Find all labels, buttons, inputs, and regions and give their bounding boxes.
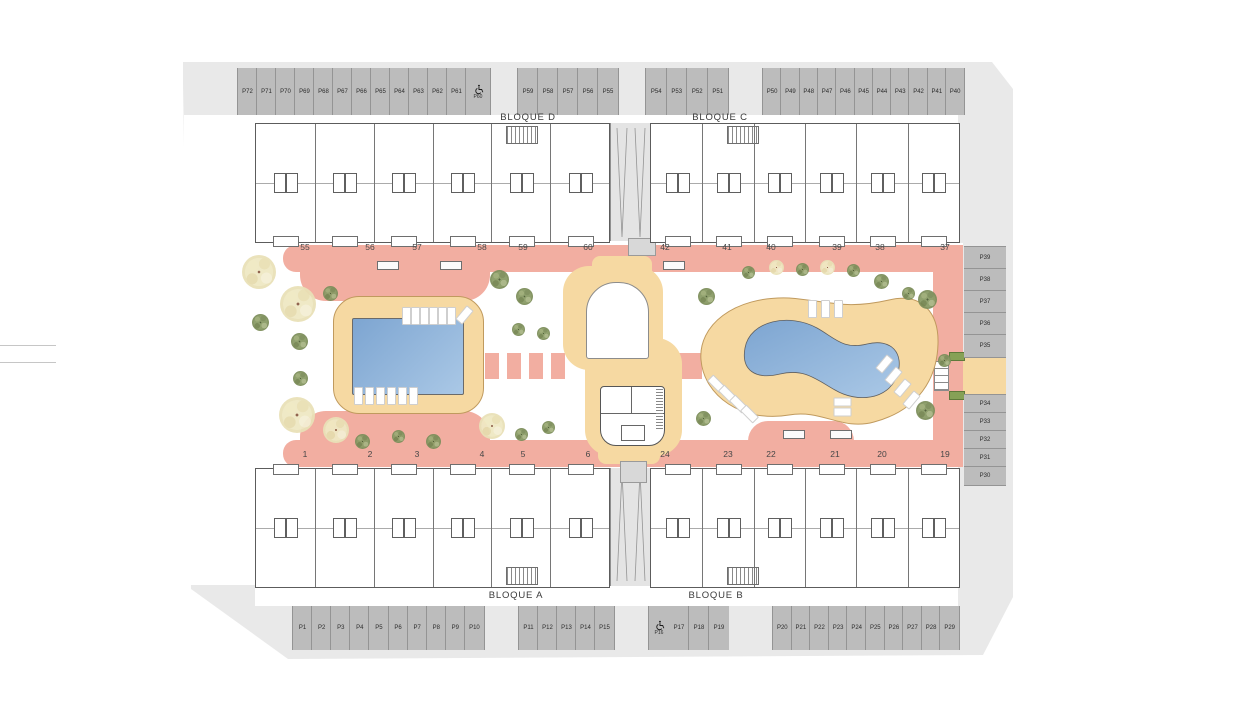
bath-core	[463, 518, 475, 538]
unit-number: 57	[412, 242, 421, 252]
parking-stall-label: P40	[950, 89, 961, 95]
unit-number: 5	[521, 449, 526, 459]
sun-lounger	[376, 387, 385, 405]
tree	[874, 274, 889, 289]
tree	[392, 430, 405, 443]
unit-number: 39	[832, 242, 841, 252]
terrace	[332, 236, 358, 247]
parking-stall-label: P8	[433, 625, 440, 631]
stair-core	[820, 518, 832, 538]
parking-stall-label: P25	[870, 625, 881, 631]
tree	[696, 411, 711, 426]
parking-stall-label: P68	[318, 89, 329, 95]
entrance-stair	[506, 567, 538, 585]
parking-stall: P4	[349, 606, 369, 650]
tree	[280, 286, 316, 322]
stair-core	[871, 173, 883, 193]
stair-core	[569, 518, 581, 538]
terrace	[509, 464, 535, 475]
apartment-wing	[650, 468, 960, 588]
pool-house	[600, 386, 665, 446]
unit-divider	[433, 124, 434, 242]
parking-stall-label: P34	[980, 401, 991, 407]
parking-stall-label: P38	[980, 277, 991, 283]
stair-core	[333, 173, 345, 193]
sun-lounger	[402, 307, 411, 325]
parking-stall-label: P16	[655, 631, 664, 636]
sun-lounger	[354, 387, 363, 405]
parking-stall: P8	[426, 606, 446, 650]
parking-stall-label: P54	[651, 89, 662, 95]
unit-divider	[374, 124, 375, 242]
bath-core	[883, 518, 895, 538]
wheelchair-icon	[473, 84, 484, 95]
parking-stall-label: P66	[356, 89, 367, 95]
parking-stall-label: P67	[337, 89, 348, 95]
parking-stall-label: P59	[523, 89, 534, 95]
parking-stall-label: P53	[671, 89, 682, 95]
stair-core	[510, 518, 522, 538]
parking-stall: P55	[597, 68, 619, 115]
unit-divider	[908, 124, 909, 242]
sun-lounger	[398, 387, 407, 405]
bath-core	[729, 518, 741, 538]
parking-stall-label: P41	[931, 89, 942, 95]
ramp-corridor-bottom	[610, 468, 652, 586]
bath-core	[832, 173, 844, 193]
bench	[830, 430, 852, 439]
stair-core	[871, 518, 883, 538]
unit-number: 3	[415, 449, 420, 459]
bath-core	[678, 518, 690, 538]
stair-core	[274, 173, 286, 193]
bath-core	[934, 173, 946, 193]
parking-stall-label: P12	[542, 625, 553, 631]
block-label-d: BLOQUE D	[500, 112, 556, 123]
stair-core	[717, 518, 729, 538]
parking-stall-label: P48	[803, 89, 814, 95]
parking-stall: P70	[275, 68, 295, 115]
parking-stall: P39	[964, 246, 1006, 269]
block-label-c: BLOQUE C	[692, 112, 748, 123]
parking-stall-label: P55	[603, 89, 614, 95]
tree	[291, 333, 308, 350]
unit-number: 23	[723, 449, 732, 459]
parking-stall-label: P64	[394, 89, 405, 95]
parking-stall-label: P15	[599, 625, 610, 631]
parking-stall: P58	[537, 68, 558, 115]
parking-stall: P18	[688, 606, 709, 650]
terrace	[819, 464, 845, 475]
parking-stall: P50	[762, 68, 781, 115]
parking-stall: P35	[964, 334, 1006, 358]
stair-core	[510, 173, 522, 193]
tree	[516, 288, 533, 305]
parking-stall-label: P20	[777, 625, 788, 631]
bath-core	[286, 173, 298, 193]
right-pool-deck	[693, 286, 945, 432]
reference-line	[0, 362, 56, 363]
unit-divider	[491, 124, 492, 242]
site-plan: P72P71P70P69P68P67P66P65P64P63P62P61P60P…	[0, 0, 1240, 720]
tree	[938, 354, 951, 367]
unit-number: 42	[660, 242, 669, 252]
unit-number: 21	[830, 449, 839, 459]
parking-stall-label: P37	[980, 299, 991, 305]
block-label-b: BLOQUE B	[689, 590, 744, 601]
bath-core	[522, 518, 534, 538]
unit-number: 4	[480, 449, 485, 459]
parking-stall: P5	[368, 606, 388, 650]
parking-stall-label: P31	[980, 455, 991, 461]
tree	[847, 264, 860, 277]
bath-core	[404, 518, 416, 538]
parking-stall: P26	[884, 606, 904, 650]
unit-number: 40	[766, 242, 775, 252]
parking-stall: P47	[817, 68, 836, 115]
parking-stall-label: P61	[451, 89, 462, 95]
parking-stall-label: P4	[356, 625, 363, 631]
parking-stall-label: P19	[714, 625, 725, 631]
unit-divider	[856, 469, 857, 587]
bath-core	[581, 518, 593, 538]
unit-number: 60	[583, 242, 592, 252]
tree	[355, 434, 370, 449]
parking-stall: P68	[313, 68, 333, 115]
parking-stall: P2	[311, 606, 331, 650]
tree	[293, 371, 308, 386]
unit-number: 58	[477, 242, 486, 252]
unit-divider	[491, 469, 492, 587]
parking-stall: P36	[964, 312, 1006, 335]
parking-stall: P11	[518, 606, 538, 650]
sun-lounger	[834, 398, 852, 407]
terrace	[665, 464, 691, 475]
terrace	[332, 464, 358, 475]
bench	[783, 430, 805, 439]
parking-stall-label: P14	[580, 625, 591, 631]
landing-pad	[620, 461, 647, 483]
stair-core	[451, 173, 463, 193]
walkway-pad	[485, 353, 499, 379]
parking-stall: P30	[964, 466, 1006, 486]
parking-stall: P54	[645, 68, 667, 115]
bath-core	[832, 518, 844, 538]
parking-stall: P1	[292, 606, 312, 650]
parking-stall: P16	[648, 606, 669, 650]
parking-stall: P62	[427, 68, 447, 115]
parking-stall: P24	[846, 606, 866, 650]
sun-lounger	[447, 307, 456, 325]
bath-core	[729, 173, 741, 193]
unit-divider	[908, 469, 909, 587]
unit-number: 59	[518, 242, 527, 252]
parking-stall-label: P71	[261, 89, 272, 95]
parking-stall-label: P56	[583, 89, 594, 95]
parking-stall-label: P1	[299, 625, 306, 631]
sun-lounger	[808, 300, 817, 318]
ramp-lines	[611, 468, 651, 586]
paddle-court	[586, 282, 649, 359]
reference-line	[0, 345, 56, 346]
parking-stall-label: P51	[712, 89, 723, 95]
tree	[426, 434, 441, 449]
tree	[916, 401, 935, 420]
stair-core	[717, 173, 729, 193]
bath-core	[286, 518, 298, 538]
parking-stall: P41	[927, 68, 946, 115]
parking-stall-label: P50	[767, 89, 778, 95]
parking-stall-label: P43	[895, 89, 906, 95]
sun-lounger	[834, 300, 843, 318]
parking-stall-label: P39	[980, 255, 991, 261]
parking-stall: P57	[557, 68, 578, 115]
stair-core	[820, 173, 832, 193]
parking-stall: P53	[666, 68, 688, 115]
unit-number: 6	[586, 449, 591, 459]
stair-core	[768, 173, 780, 193]
parking-stall: P27	[902, 606, 922, 650]
sun-lounger	[834, 408, 852, 417]
parking-stall: P7	[407, 606, 427, 650]
parking-stall: P40	[945, 68, 965, 115]
parking-stall-label: P65	[375, 89, 386, 95]
terrace	[450, 464, 476, 475]
parking-stall: P66	[351, 68, 371, 115]
unit-number: 56	[365, 242, 374, 252]
bench	[377, 261, 399, 270]
bath-core	[934, 518, 946, 538]
parking-stall: P28	[921, 606, 941, 650]
parking-stall-label: P70	[280, 89, 291, 95]
parking-stall-label: P60	[474, 95, 483, 100]
ramp-lines	[611, 123, 651, 241]
parking-stall-label: P10	[469, 625, 480, 631]
parking-stall: P71	[256, 68, 276, 115]
bench	[440, 261, 462, 270]
parking-stall-label: P5	[375, 625, 382, 631]
parking-stall: P12	[537, 606, 557, 650]
parking-stall-label: P49	[785, 89, 796, 95]
apartment-wing	[255, 123, 610, 243]
parking-stall-label: P29	[944, 625, 955, 631]
stair-core	[392, 518, 404, 538]
parking-stall: P69	[294, 68, 314, 115]
tree	[479, 413, 505, 439]
hedge	[949, 391, 965, 400]
parking-stall: P22	[809, 606, 829, 650]
unit-divider	[315, 469, 316, 587]
parking-stall-label: P47	[822, 89, 833, 95]
parking-stall: P9	[445, 606, 465, 650]
parking-stall: P49	[780, 68, 799, 115]
parking-stall: P32	[964, 430, 1006, 449]
room-box	[621, 425, 645, 441]
parking-stall-label: P36	[980, 321, 991, 327]
terrace	[273, 464, 299, 475]
stair-core	[922, 518, 934, 538]
entrance-stair	[727, 126, 759, 144]
parking-stall: P25	[865, 606, 885, 650]
bath-core	[345, 518, 357, 538]
tree	[796, 263, 809, 276]
unit-divider	[702, 469, 703, 587]
ramp-corridor-top	[610, 123, 652, 241]
parking-stall-label: P13	[561, 625, 572, 631]
parking-stall-label: P6	[394, 625, 401, 631]
wall-line	[601, 413, 664, 414]
parking-stall-label: P35	[980, 343, 991, 349]
parking-stall: P21	[791, 606, 811, 650]
parking-stall: P42	[908, 68, 927, 115]
parking-stall: P59	[517, 68, 538, 115]
tree	[742, 266, 755, 279]
bath-core	[522, 173, 534, 193]
parking-stall-label: P44	[877, 89, 888, 95]
terrace	[273, 236, 299, 247]
parking-stall: P38	[964, 268, 1006, 291]
parking-stall: P33	[964, 412, 1006, 431]
sun-lounger	[821, 300, 830, 318]
entrance-stair	[506, 126, 538, 144]
walkway-pad	[529, 353, 543, 379]
tree	[490, 270, 509, 289]
terrace	[767, 464, 793, 475]
unit-divider	[856, 124, 857, 242]
parking-stall-label: P11	[523, 625, 533, 631]
terrace	[870, 464, 896, 475]
parking-stall-label: P28	[926, 625, 937, 631]
unit-divider	[315, 124, 316, 242]
apartment-wing	[255, 468, 610, 588]
parking-stall: P63	[408, 68, 428, 115]
terrace	[568, 464, 594, 475]
bath-core	[780, 518, 792, 538]
stair-core	[569, 173, 581, 193]
block-label-a: BLOQUE A	[489, 590, 543, 601]
parking-stall: P67	[332, 68, 352, 115]
stair-core	[392, 173, 404, 193]
tree	[698, 288, 715, 305]
parking-stall: P34	[964, 394, 1006, 413]
parking-stall-label: P72	[242, 89, 253, 95]
parking-stall-label: P42	[913, 89, 924, 95]
unit-divider	[805, 469, 806, 587]
stair-core	[333, 518, 345, 538]
terrace	[921, 464, 947, 475]
unit-number: 2	[368, 449, 373, 459]
parking-stall: P43	[890, 68, 909, 115]
terrace	[450, 236, 476, 247]
parking-stall-label: P18	[694, 625, 705, 631]
unit-divider	[805, 124, 806, 242]
bath-core	[883, 173, 895, 193]
parking-stall-label: P52	[692, 89, 703, 95]
parking-stall-label: P22	[814, 625, 825, 631]
parking-stall-label: P24	[851, 625, 862, 631]
parking-stall-label: P9	[452, 625, 459, 631]
parking-stall: P61	[446, 68, 466, 115]
bath-core	[463, 173, 475, 193]
entrance-stair	[727, 567, 759, 585]
walkway-pad	[507, 353, 521, 379]
bath-core	[345, 173, 357, 193]
unit-number: 24	[660, 449, 669, 459]
tree	[902, 287, 915, 300]
wall-line	[631, 387, 632, 413]
parking-stall-label: P69	[299, 89, 310, 95]
unit-number: 22	[766, 449, 775, 459]
apartment-wing	[650, 123, 960, 243]
unit-number: 1	[303, 449, 308, 459]
parking-stall: P65	[370, 68, 390, 115]
parking-stall-label: P7	[413, 625, 420, 631]
sun-lounger	[387, 387, 396, 405]
sun-lounger	[429, 307, 438, 325]
parking-stall: P44	[872, 68, 891, 115]
tree	[252, 314, 269, 331]
unit-divider	[550, 124, 551, 242]
tree	[769, 260, 784, 275]
parking-stall: P3	[330, 606, 350, 650]
stair-core	[451, 518, 463, 538]
stair-core	[274, 518, 286, 538]
parking-stall-label: P57	[563, 89, 574, 95]
unit-divider	[702, 124, 703, 242]
tree	[242, 255, 276, 289]
tree	[537, 327, 550, 340]
terrace	[716, 464, 742, 475]
tree	[515, 428, 528, 441]
tree	[512, 323, 525, 336]
left-pool	[352, 318, 464, 395]
unit-number: 20	[877, 449, 886, 459]
walkway-pad	[551, 353, 565, 379]
parking-stall-label: P45	[858, 89, 869, 95]
stair-core	[768, 518, 780, 538]
sun-lounger	[365, 387, 374, 405]
stair-core	[666, 518, 678, 538]
parking-stall: P14	[575, 606, 595, 650]
hedge	[949, 352, 965, 361]
parking-stall-label: P21	[796, 625, 807, 631]
parking-stall: P13	[556, 606, 576, 650]
parking-stall-label: P33	[980, 419, 991, 425]
parking-stall-label: P30	[980, 473, 991, 479]
bath-core	[581, 173, 593, 193]
tree	[542, 421, 555, 434]
unit-divider	[433, 469, 434, 587]
tree	[820, 260, 835, 275]
bath-core	[404, 173, 416, 193]
parking-stall-label: P17	[674, 625, 685, 631]
parking-stall: P48	[799, 68, 818, 115]
parking-stall-label: P26	[889, 625, 900, 631]
parking-stall: P52	[686, 68, 708, 115]
parking-stall: P23	[828, 606, 848, 650]
terrace	[391, 464, 417, 475]
parking-stall: P6	[388, 606, 408, 650]
unit-number: 37	[940, 242, 949, 252]
stair-hatch	[656, 389, 663, 429]
parking-stall-label: P32	[980, 437, 991, 443]
unit-divider	[374, 469, 375, 587]
parking-stall: P72	[237, 68, 257, 115]
stair-core	[666, 173, 678, 193]
unit-number: 55	[300, 242, 309, 252]
sun-lounger	[438, 307, 447, 325]
parking-stall-label: P58	[543, 89, 554, 95]
